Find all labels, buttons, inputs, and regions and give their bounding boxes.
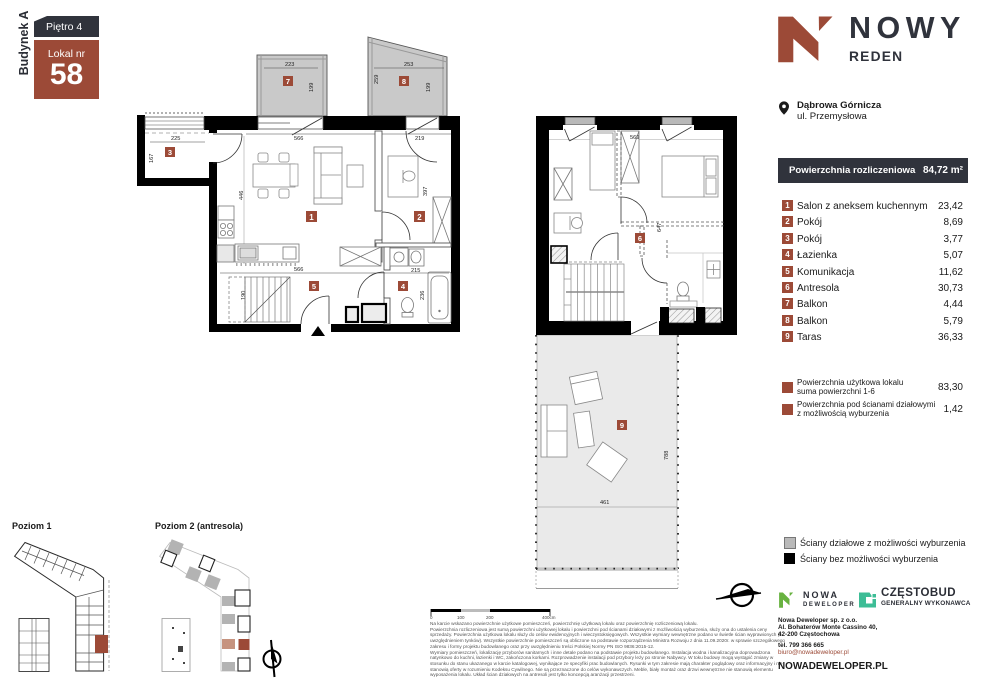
svg-text:219: 219	[415, 136, 424, 142]
svg-text:100: 100	[457, 615, 465, 620]
svg-text:236: 236	[420, 291, 426, 300]
svg-text:253: 253	[404, 62, 413, 68]
svg-text:7: 7	[286, 77, 290, 86]
svg-text:8: 8	[402, 77, 406, 86]
svg-text:167: 167	[149, 154, 155, 163]
svg-text:200: 200	[486, 615, 494, 620]
svg-text:259: 259	[374, 75, 380, 84]
svg-text:199: 199	[426, 83, 432, 92]
svg-text:199: 199	[309, 83, 315, 92]
svg-text:3: 3	[168, 148, 172, 157]
svg-text:400cm: 400cm	[542, 615, 556, 620]
svg-text:566: 566	[294, 267, 303, 273]
svg-text:461: 461	[600, 500, 609, 506]
svg-text:566: 566	[294, 136, 303, 142]
svg-text:5: 5	[312, 282, 316, 291]
svg-text:397: 397	[423, 187, 429, 196]
svg-text:0: 0	[430, 615, 433, 620]
svg-text:225: 225	[171, 136, 180, 142]
svg-text:6: 6	[638, 234, 642, 243]
svg-text:569: 569	[630, 135, 639, 141]
svg-text:1: 1	[309, 213, 314, 222]
svg-text:9: 9	[620, 421, 624, 430]
svg-text:788: 788	[664, 451, 670, 460]
svg-text:2: 2	[417, 213, 422, 222]
svg-text:223: 223	[285, 62, 294, 68]
svg-text:647: 647	[657, 223, 663, 232]
svg-text:190: 190	[241, 291, 247, 300]
